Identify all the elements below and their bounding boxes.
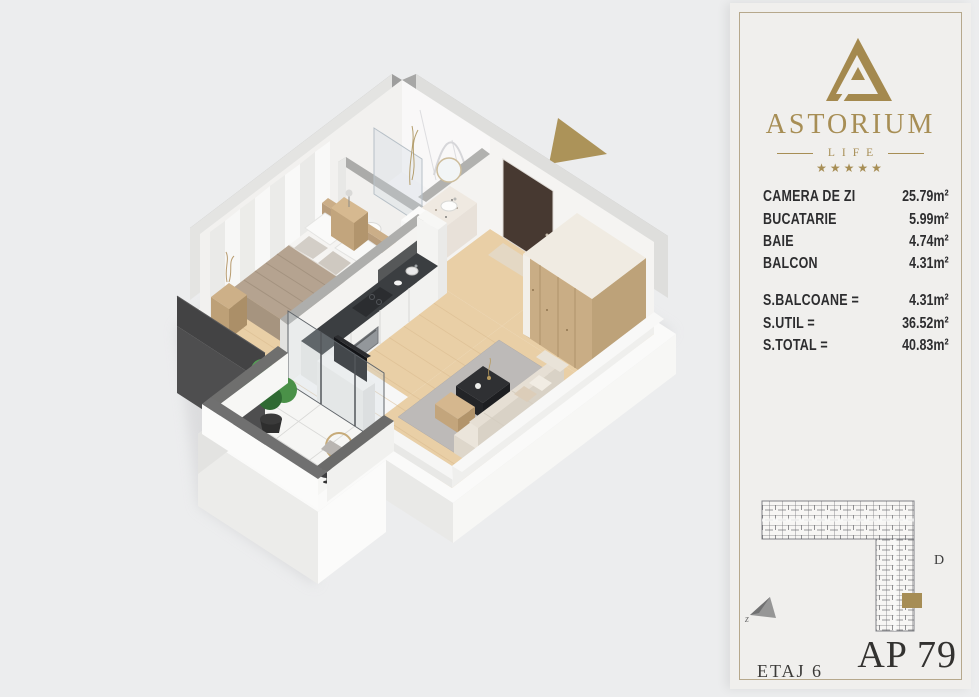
room-row: BALCON 4.31m² [763, 253, 949, 275]
total-label: S.UTIL = [763, 315, 815, 333]
room-value: 25.79m² [903, 188, 949, 206]
room-row: BUCATARIE 5.99m² [763, 208, 949, 230]
total-value: 4.31m² [909, 292, 949, 310]
total-value: 40.83m² [903, 337, 949, 355]
info-card: ASTORIUM LIFE ★★★★★ CAMERA DE ZI 25.79m²… [730, 3, 971, 689]
room-row: CAMERA DE ZI 25.79m² [763, 186, 949, 208]
page-root: { "brand": { "name": "ASTORIUM", "taglin… [0, 0, 979, 692]
total-label: S.TOTAL = [763, 337, 828, 355]
room-label: CAMERA DE ZI [763, 188, 855, 206]
sink [406, 267, 418, 275]
room-value: 5.99m² [909, 211, 949, 229]
brand-tagline: LIFE [821, 147, 880, 159]
floor-label: ETAJ 6 [757, 661, 823, 682]
room-value: 4.31m² [909, 255, 949, 273]
site-plan-building [762, 501, 914, 631]
brand-tagline-row: LIFE [730, 147, 971, 159]
floorplan-render [0, 0, 735, 692]
compass-icon [740, 591, 784, 631]
brand-name: ASTORIUM [730, 109, 971, 141]
site-plan-highlight-unit [902, 593, 922, 608]
compass-label: z [745, 614, 749, 625]
tagline-rule-right [888, 153, 924, 154]
room-areas-list: CAMERA DE ZI 25.79m² BUCATARIE 5.99m² BA… [763, 186, 949, 276]
tagline-rule-left [777, 153, 813, 154]
totals-list: S.BALCOANE = 4.31m² S.UTIL = 36.52m² S.T… [763, 290, 949, 357]
total-row: S.BALCOANE = 4.31m² [763, 290, 949, 312]
site-plan [756, 495, 948, 651]
room-label: BAIE [763, 233, 794, 251]
room-value: 4.74m² [909, 233, 949, 251]
brand-stars: ★★★★★ [730, 161, 971, 175]
apartment-label: AP 79 [857, 633, 957, 677]
room-row: BAIE 4.74m² [763, 231, 949, 253]
north-arrow-icon [549, 118, 607, 164]
floorplan-svg [0, 0, 735, 692]
total-row: S.TOTAL = 40.83m² [763, 335, 949, 357]
room-label: BALCON [763, 255, 818, 273]
total-value: 36.52m² [903, 315, 949, 333]
mirror [437, 158, 461, 182]
total-row: S.UTIL = 36.52m² [763, 312, 949, 334]
total-label: S.BALCOANE = [763, 292, 859, 310]
section-label: D [934, 553, 944, 569]
room-label: BUCATARIE [763, 211, 837, 229]
